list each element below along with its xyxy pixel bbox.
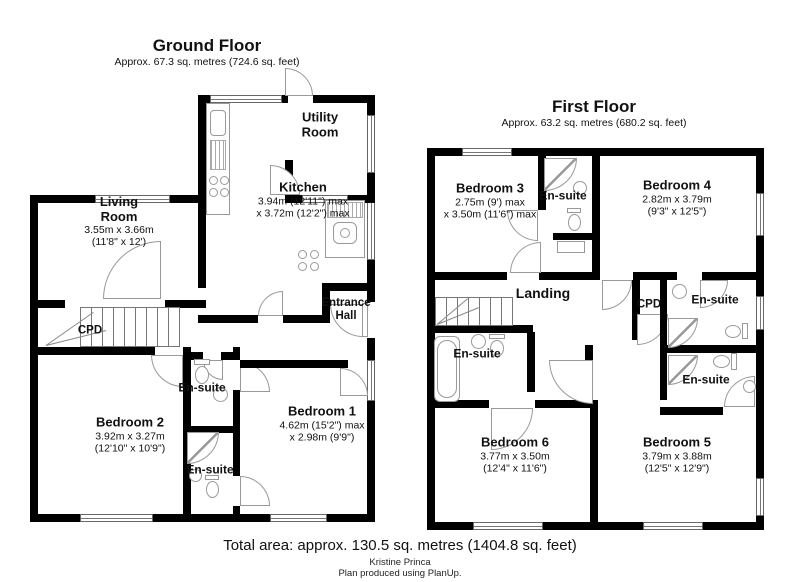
window [367, 115, 375, 173]
window [756, 296, 764, 330]
wall [233, 347, 240, 360]
ground-floor-title: Ground Floor [57, 36, 357, 56]
hob-burner-icon [220, 176, 229, 185]
sink-icon [210, 110, 226, 136]
window [367, 360, 375, 401]
toilet-icon [194, 359, 210, 365]
wall [233, 506, 240, 522]
hob-burner-icon [310, 250, 319, 259]
toilet-icon [489, 334, 505, 339]
wall [30, 347, 155, 355]
door-arc [340, 368, 368, 396]
toilet-icon [725, 325, 741, 338]
door-arc [549, 360, 593, 404]
wall [427, 325, 533, 333]
room-label-ensuite-upper: En-suite [178, 381, 225, 394]
room-label-bedroom-1: Bedroom 1 4.62m (15'2") max x 2.98m (9'9… [279, 404, 364, 443]
room-label-ensuite-lower: En-suite [186, 463, 233, 476]
room-label-kitchen: Kitchen 3.94m (12'11") max x 3.72m (12'2… [256, 180, 349, 219]
toilet-icon [206, 481, 219, 498]
window [270, 514, 327, 522]
window [756, 478, 764, 516]
door-arc [258, 291, 283, 316]
shower-icon [668, 318, 698, 348]
room-label-cpd-ff: CPD [637, 299, 661, 312]
wall [702, 272, 764, 280]
ground-floor-subtitle: Approx. 67.3 sq. metres (724.6 sq. feet) [57, 56, 357, 68]
wall [30, 195, 38, 522]
floorplan-ground: Living Room 3.55m x 3.66m (11'8" x 12') … [30, 88, 410, 530]
room-label-bedroom-3: Bedroom 3 2.75m (9') max x 3.50m (11'6")… [444, 181, 537, 220]
toilet-icon [731, 353, 737, 370]
wall [660, 407, 723, 415]
toilet-icon [713, 355, 730, 368]
hob-burner-icon [209, 176, 218, 185]
shower-icon [544, 158, 577, 191]
hob-burner-icon [310, 262, 319, 271]
door-arc [285, 68, 313, 96]
hob-burner-icon [298, 262, 307, 271]
window [80, 514, 153, 522]
first-floor-title: First Floor [444, 97, 744, 117]
room-label-ensuite-left: En-suite [453, 347, 500, 360]
room-label-living-room: Living Room 3.55m x 3.66m (11'8" x 12') [84, 195, 153, 249]
first-floor-subtitle: Approx. 63.2 sq. metres (680.2 sq. feet) [444, 117, 744, 129]
credit-text: Plan produced using PlanUp. [100, 568, 700, 579]
room-label-utility-room: Utility Room [294, 110, 346, 139]
door-arc [240, 476, 270, 506]
room-label-landing: Landing [516, 286, 570, 302]
sink-icon [672, 284, 687, 299]
room-label-bedroom-5: Bedroom 5 3.79m x 3.88m (12'5" x 12'9") [642, 435, 711, 474]
room-label-cpd: CPD [78, 325, 102, 338]
sink-drain-icon [340, 228, 350, 238]
wall [590, 407, 598, 522]
door-arc [510, 242, 541, 273]
wall [313, 95, 375, 103]
stairs [435, 297, 513, 326]
wall [527, 332, 535, 392]
sink-icon [743, 380, 756, 393]
window [643, 522, 703, 530]
wall [633, 272, 677, 280]
wall [240, 360, 348, 368]
hob-burner-icon [209, 188, 218, 197]
toilet-icon [567, 208, 581, 213]
room-label-entrance-hall: Entrance Hall [314, 297, 378, 323]
room-label-ensuite-right-upper: En-suite [691, 293, 738, 306]
shower-icon [187, 432, 219, 464]
wall [233, 390, 240, 476]
author-text: Kristine Princa [100, 557, 700, 568]
wall [198, 315, 258, 323]
window [367, 200, 375, 260]
room-label-ensuite-right-lower: En-suite [682, 373, 729, 386]
wall [592, 156, 600, 280]
window [210, 95, 282, 103]
room-label-bedroom-2: Bedroom 2 3.92m x 3.27m (12'10" x 10'9") [95, 415, 165, 454]
wall [435, 272, 507, 280]
room-label-ensuite-top: En-suite [539, 189, 586, 202]
room-label-bedroom-4: Bedroom 4 2.82m x 3.79m (9'3" x 12'5") [642, 178, 711, 217]
window [473, 522, 543, 530]
room-label-bedroom-6: Bedroom 6 3.77m x 3.50m (12'4" x 11'6") [480, 435, 549, 474]
window [756, 193, 764, 236]
wall [585, 345, 593, 360]
door-arc [103, 241, 161, 299]
wall [539, 272, 592, 280]
floorplan-first: Bedroom 3 2.75m (9') max x 3.50m (11'6")… [427, 148, 764, 530]
wall [198, 95, 206, 288]
hob-burner-icon [220, 188, 229, 197]
drainer-icon [210, 140, 226, 170]
total-area-text: Total area: approx. 130.5 sq. metres (14… [100, 537, 700, 554]
door-arc [602, 280, 632, 310]
vanity-unit [557, 241, 585, 253]
wall [553, 233, 592, 240]
wall [38, 300, 65, 308]
window [462, 148, 512, 156]
toilet-icon [742, 323, 748, 339]
hob-burner-icon [298, 250, 307, 259]
toilet-icon [568, 214, 581, 231]
